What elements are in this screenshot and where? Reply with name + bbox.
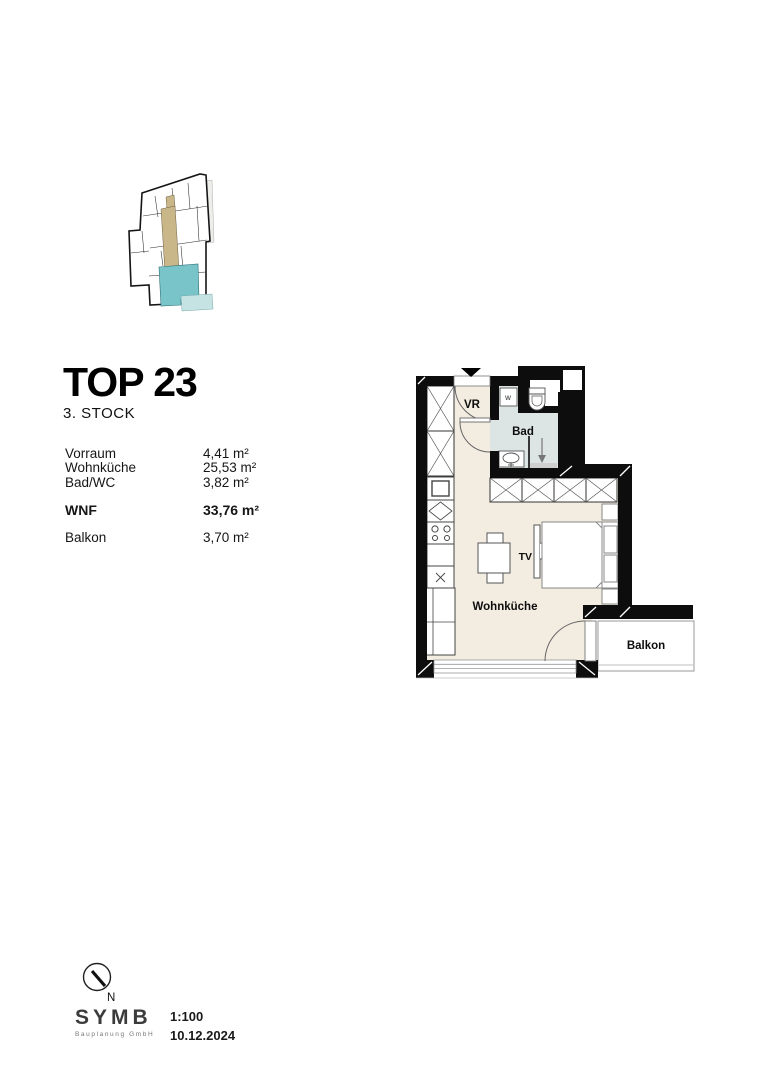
room-value: 4,41 m² — [203, 447, 249, 461]
room-value: 25,53 m² — [203, 461, 256, 475]
company-logo: SYMB Bauplanung GmbH — [75, 1007, 154, 1038]
balcony-value: 3,70 m² — [203, 531, 249, 545]
room-label: Vorraum — [65, 447, 203, 461]
logo-text: SYMB — [75, 1007, 154, 1029]
nightstand — [602, 589, 618, 604]
logo-subtext: Bauplanung GmbH — [75, 1031, 154, 1038]
area-row-vorraum: Vorraum 4,41 m² — [65, 447, 315, 461]
room-label: Wohnküche — [65, 461, 203, 475]
right-wall — [618, 464, 632, 609]
counter — [427, 544, 454, 566]
entry-wardrobe — [427, 386, 454, 476]
compass: N — [75, 955, 125, 1010]
room-value: 3,82 m² — [203, 476, 249, 490]
total-label: WNF — [65, 503, 203, 517]
pillow — [604, 526, 617, 553]
room-label-bad: Bad — [512, 426, 534, 438]
bath-door-wall-top — [490, 386, 499, 420]
room-label-living: Wohnküche — [473, 601, 538, 613]
floor-label: 3. STOCK — [63, 405, 197, 422]
room-label-vorraum: VR — [464, 399, 481, 411]
washer-label: w — [504, 393, 511, 402]
room-label-balcony: Balkon — [627, 640, 665, 652]
apartment-plan: VR Bad w TV Wohnküche Balkon — [402, 353, 722, 685]
balcony-wall — [583, 605, 693, 619]
pillow — [604, 555, 617, 582]
fridge-cabinet — [426, 588, 455, 655]
shaft-notch — [563, 370, 582, 390]
area-row-bad: Bad/WC 3,82 m² — [65, 476, 315, 490]
bath-door-wall-bottom — [490, 451, 499, 468]
shower-sill — [530, 463, 557, 468]
bath-south-wall — [490, 468, 558, 478]
window — [416, 660, 598, 678]
scale-date-block: 1:100 10.12.2024 — [170, 1007, 235, 1045]
area-table: Vorraum 4,41 m² Wohnküche 25,53 m² Bad/W… — [65, 447, 315, 545]
area-row-balkon: Balkon 3,70 m² — [65, 531, 315, 545]
overview-plan — [125, 165, 240, 315]
plan-date: 10.12.2024 — [170, 1026, 235, 1045]
nightstand — [602, 504, 618, 520]
shaft-niche-stem — [545, 391, 558, 406]
unit-balcony-highlight — [181, 294, 213, 311]
kitchen-units — [426, 477, 455, 655]
chair — [487, 533, 503, 543]
plan-scale: 1:100 — [170, 1007, 235, 1026]
floorplan-sheet: TOP 23 3. STOCK Vorraum 4,41 m² Wohnküch… — [0, 0, 763, 1080]
total-value: 33,76 m² — [203, 503, 259, 517]
area-row-wohnkueche: Wohnküche 25,53 m² — [65, 461, 315, 475]
tv-label: TV — [519, 551, 532, 563]
room-label: Bad/WC — [65, 476, 203, 490]
table — [478, 543, 510, 573]
chair — [487, 573, 503, 583]
area-row-total: WNF 33,76 m² — [65, 503, 315, 517]
cooktop — [427, 522, 454, 544]
wardrobe-strip — [490, 478, 617, 502]
unit-title: TOP 23 — [63, 360, 197, 404]
toilet — [529, 388, 545, 410]
title-block: TOP 23 3. STOCK — [63, 360, 197, 422]
compass-north-label: N — [107, 992, 115, 1004]
balcony-label: Balkon — [65, 531, 203, 545]
